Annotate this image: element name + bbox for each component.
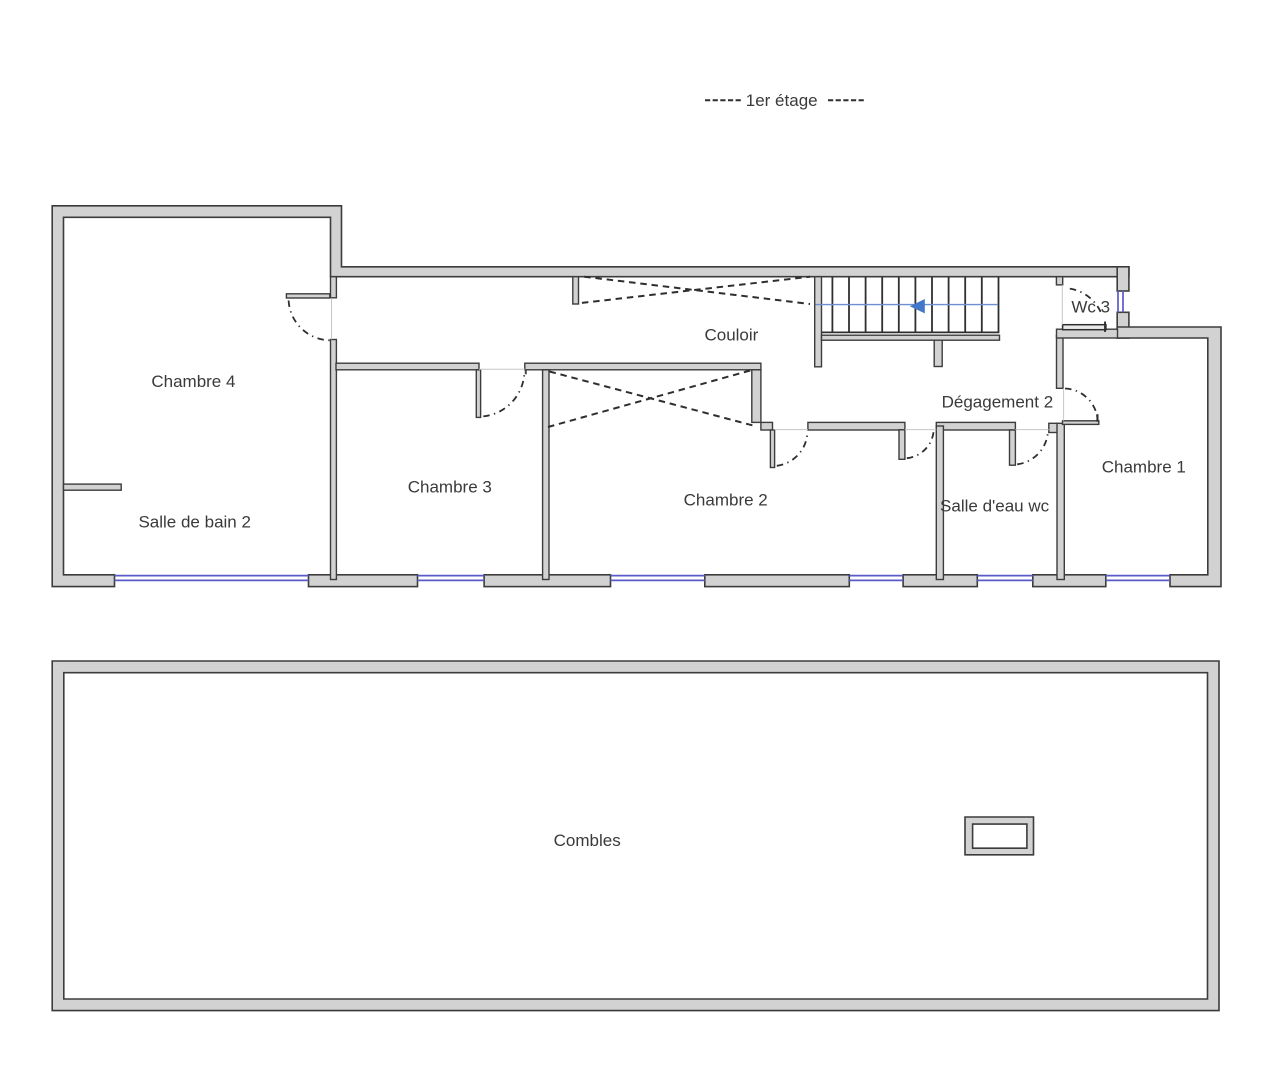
svg-text:Chambre 2: Chambre 2 bbox=[684, 491, 768, 510]
svg-text:1er étage: 1er étage bbox=[746, 91, 818, 110]
svg-text:Couloir: Couloir bbox=[704, 326, 758, 345]
svg-text:Chambre 1: Chambre 1 bbox=[1102, 457, 1186, 476]
svg-text:Salle d'eau wc: Salle d'eau wc bbox=[940, 496, 1050, 515]
svg-text:Combles: Combles bbox=[554, 831, 621, 850]
svg-text:Salle de bain 2: Salle de bain 2 bbox=[138, 513, 250, 532]
svg-text:Wc 3: Wc 3 bbox=[1071, 298, 1110, 317]
svg-text:Chambre 3: Chambre 3 bbox=[408, 477, 492, 496]
svg-text:Chambre 4: Chambre 4 bbox=[151, 372, 235, 391]
svg-text:Dégagement 2: Dégagement 2 bbox=[942, 393, 1054, 412]
